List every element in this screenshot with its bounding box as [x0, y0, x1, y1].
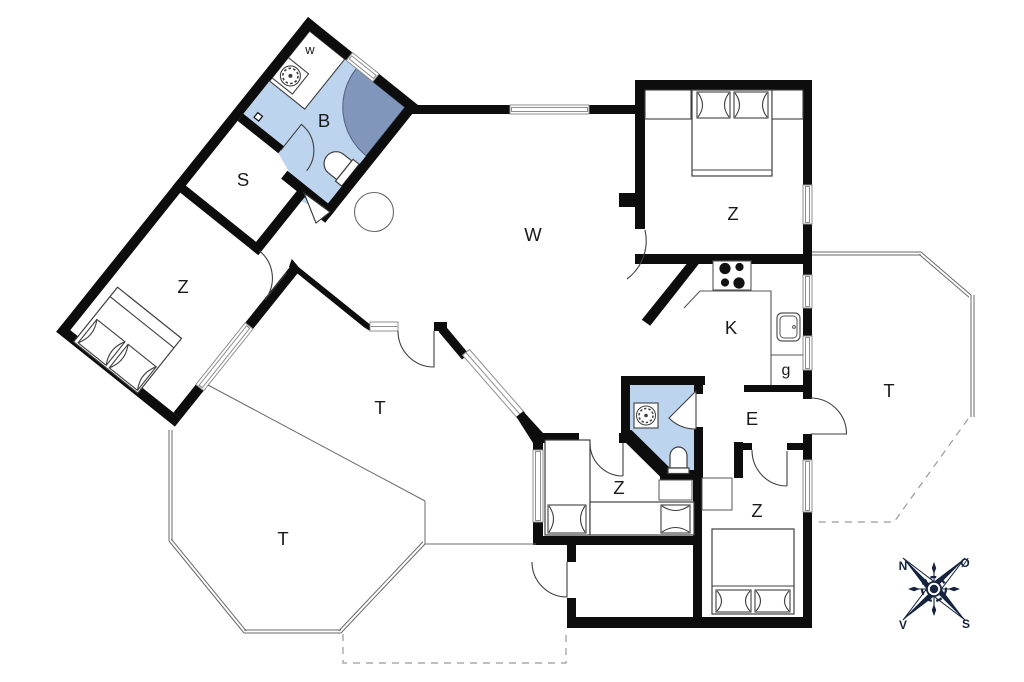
svg-text:T: T [374, 397, 385, 418]
svg-text:V: V [899, 618, 907, 632]
svg-text:Z: Z [177, 276, 188, 297]
svg-text:S: S [237, 169, 249, 190]
svg-text:W: W [524, 224, 542, 245]
svg-text:S: S [962, 617, 970, 631]
svg-text:B: B [318, 110, 330, 131]
svg-text:N: N [899, 559, 908, 573]
svg-text:T: T [883, 380, 894, 401]
svg-text:Z: Z [613, 477, 624, 498]
svg-text:Z: Z [751, 500, 762, 521]
svg-text:w: w [304, 42, 315, 57]
svg-text:T: T [277, 528, 288, 549]
svg-text:g: g [782, 362, 791, 379]
svg-text:K: K [725, 317, 738, 338]
svg-text:Ø: Ø [960, 556, 969, 570]
svg-text:E: E [746, 408, 758, 429]
svg-text:Z: Z [727, 203, 738, 224]
